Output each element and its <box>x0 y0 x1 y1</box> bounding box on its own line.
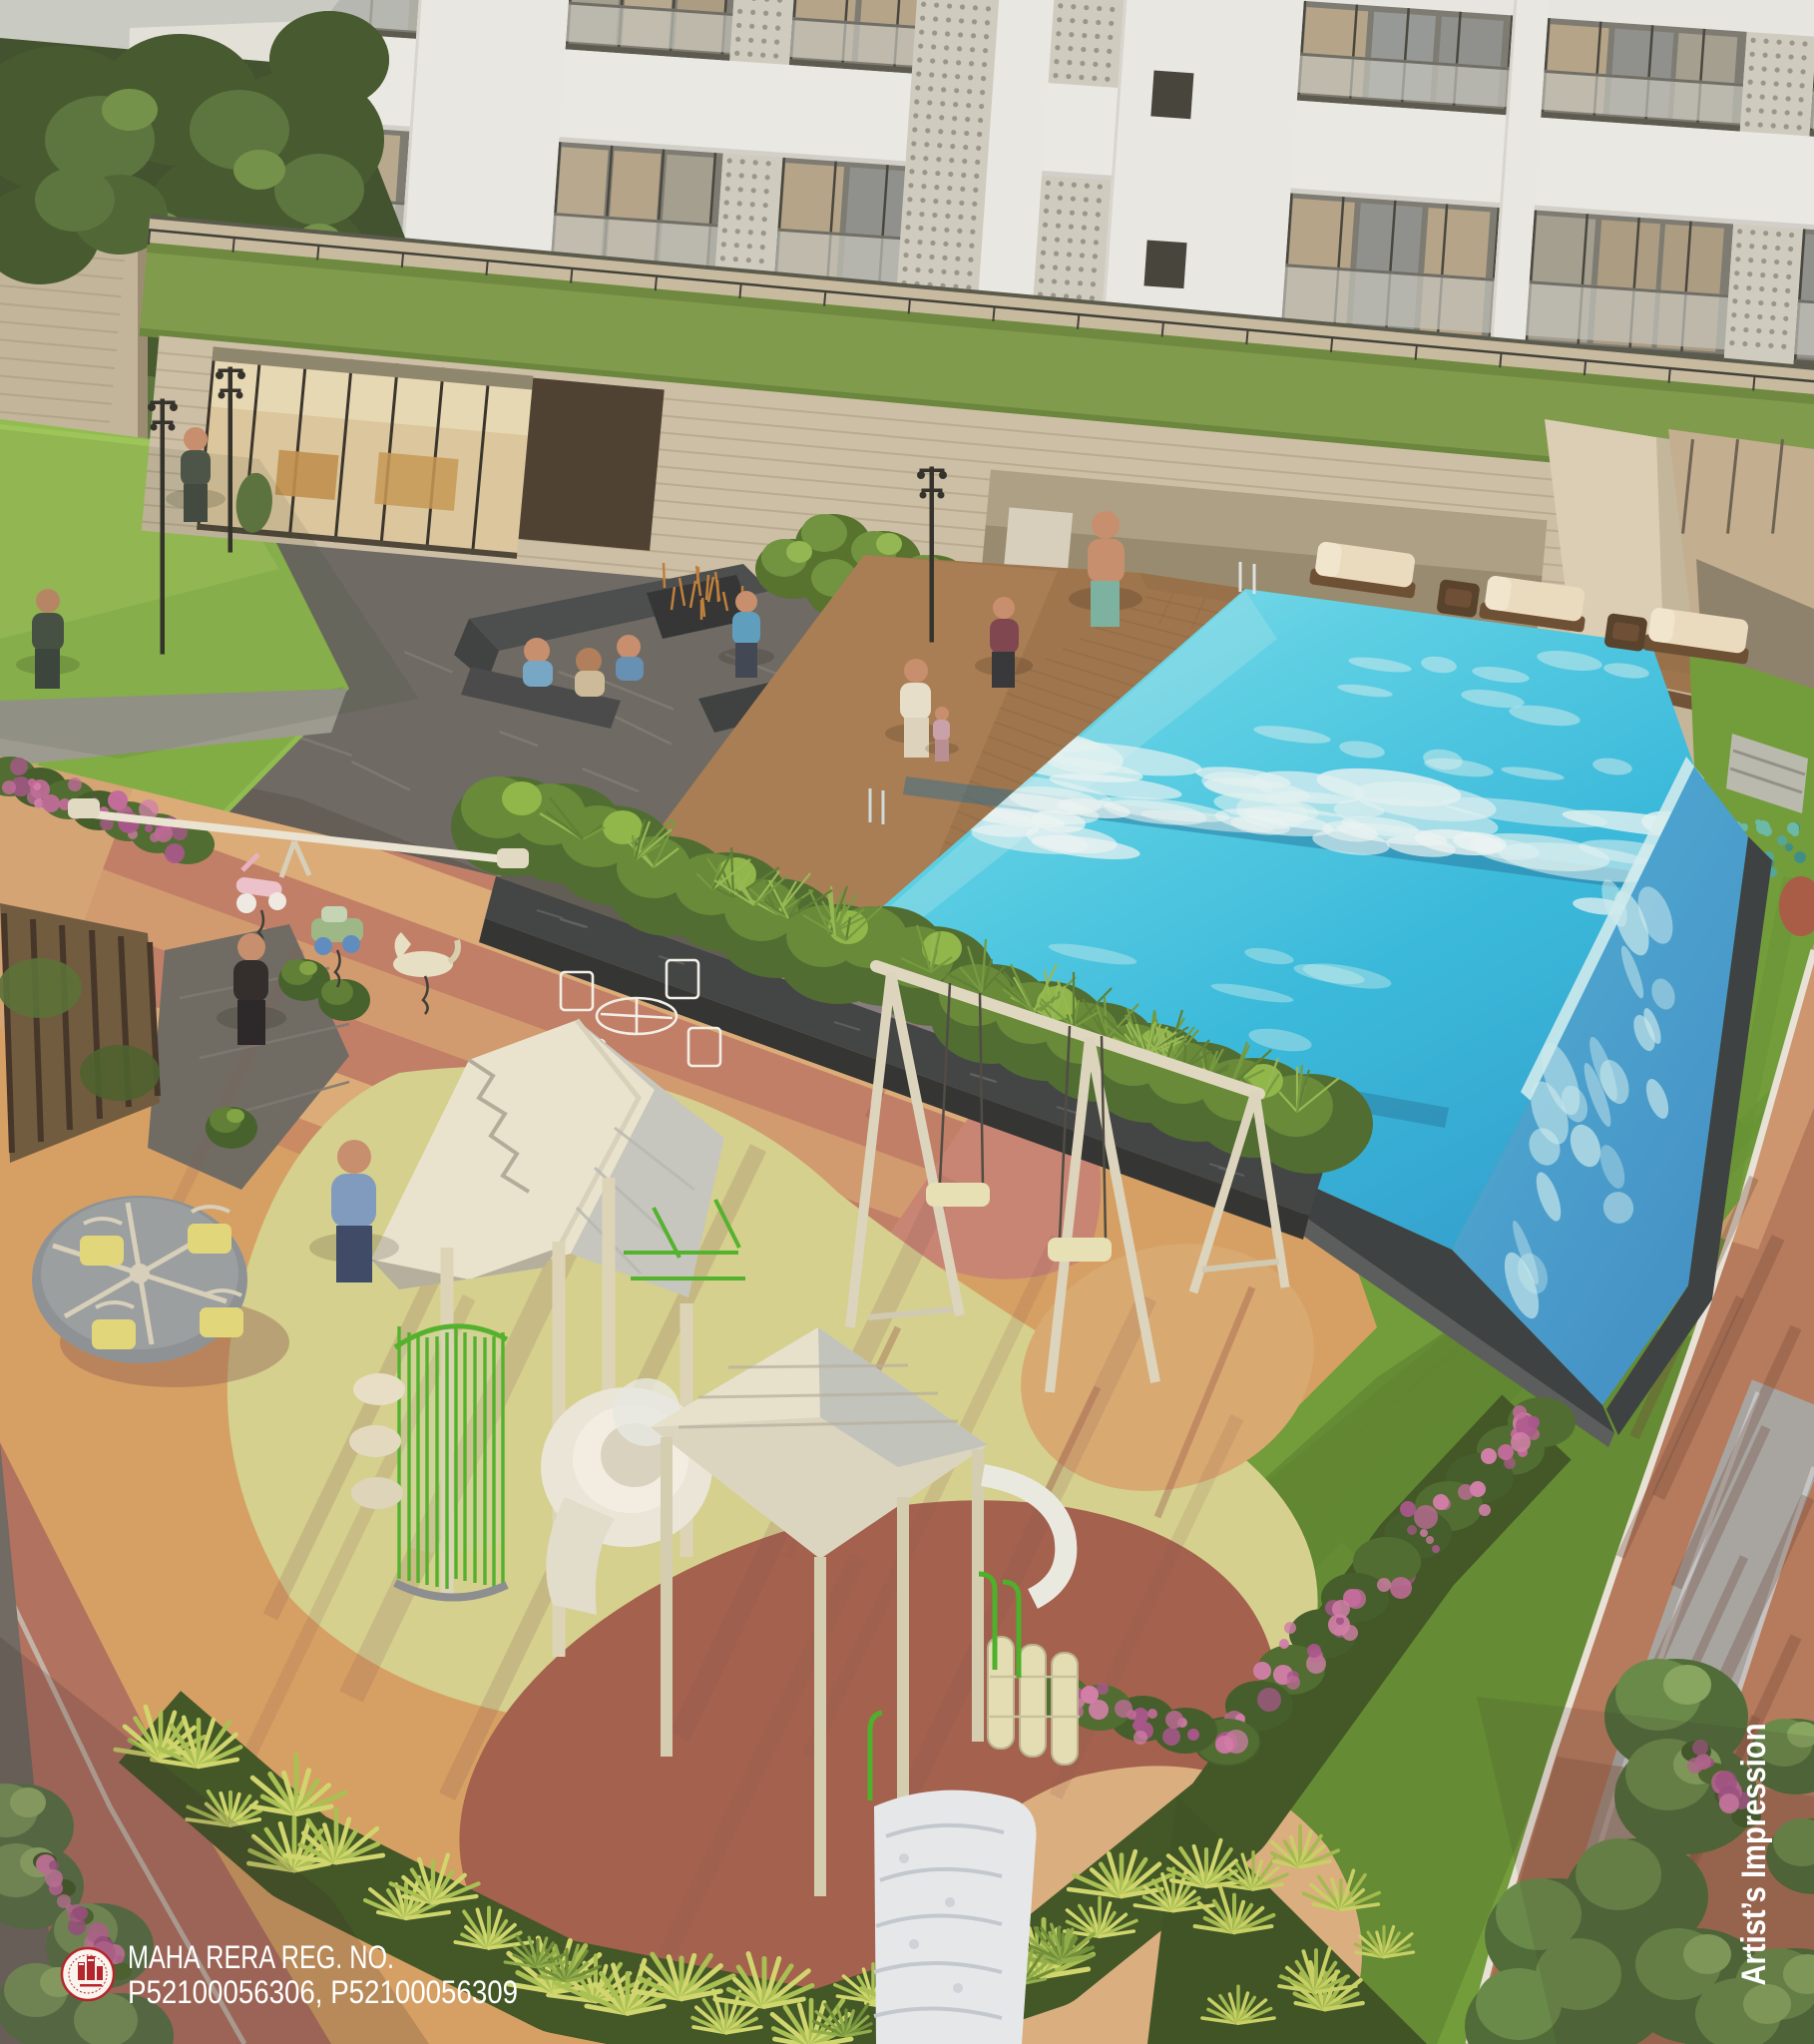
svg-text:MAHA RERA REG. NO.: MAHA RERA REG. NO. <box>128 1939 394 1975</box>
svg-text:Artist’s Impression: Artist’s Impression <box>1735 1724 1773 1986</box>
svg-text:P52100056306, P52100056309: P52100056306, P52100056309 <box>128 1974 518 2010</box>
